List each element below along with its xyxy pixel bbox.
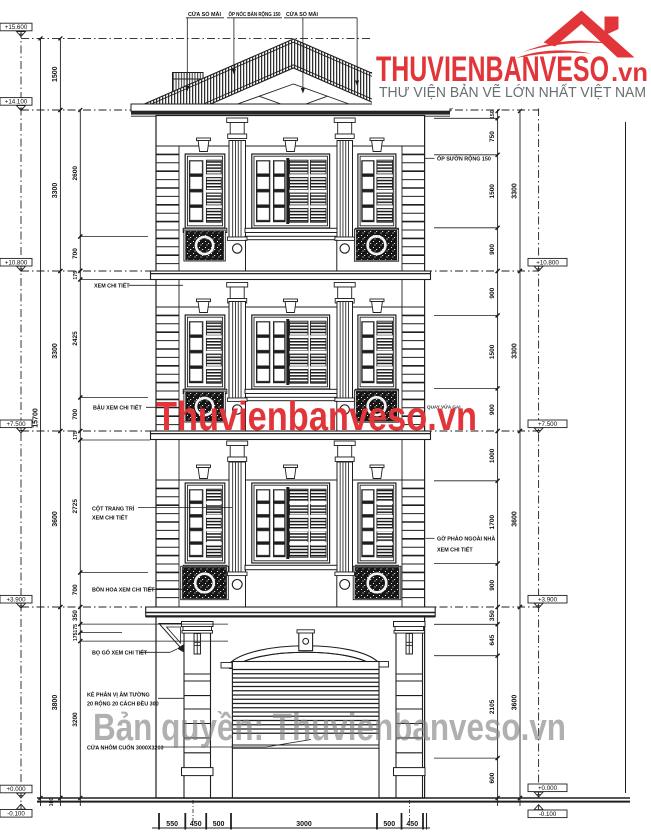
svg-text:15700: 15700	[33, 408, 40, 428]
svg-text:ỐP SƯỜN RỘNG 150: ỐP SƯỜN RỘNG 150	[437, 155, 491, 163]
svg-text:CỬA SỔ MÁI: CỬA SỔ MÁI	[286, 11, 318, 18]
svg-text:175: 175	[73, 624, 79, 633]
svg-text:3800: 3800	[52, 695, 59, 711]
svg-text:900: 900	[489, 244, 496, 255]
svg-text:500: 500	[213, 821, 225, 828]
svg-text:900: 900	[489, 579, 496, 590]
svg-text:3300: 3300	[512, 343, 519, 359]
svg-text:XEM CHI TIẾT: XEM CHI TIẾT	[92, 515, 128, 522]
svg-text:900: 900	[489, 404, 496, 415]
svg-text:Thuvienbanveso.vn: Thuvienbanveso.vn	[156, 393, 477, 439]
svg-text:700: 700	[72, 248, 79, 259]
svg-text:645: 645	[489, 634, 496, 645]
svg-text:+0.000: +0.000	[6, 786, 26, 793]
svg-text:-0.100: -0.100	[539, 811, 557, 818]
svg-text:3600: 3600	[52, 511, 59, 527]
svg-text:+7.500: +7.500	[538, 421, 558, 428]
svg-text:+3.900: +3.900	[538, 596, 558, 603]
svg-text:100: 100	[49, 798, 55, 807]
svg-text:600: 600	[489, 772, 496, 783]
svg-text:3300: 3300	[52, 183, 59, 199]
svg-text:+10.800: +10.800	[5, 259, 28, 266]
svg-text:3300: 3300	[512, 183, 519, 199]
svg-text:500: 500	[383, 821, 395, 828]
svg-text:1500: 1500	[52, 66, 59, 82]
svg-text:2425: 2425	[72, 331, 79, 346]
svg-text:175: 175	[73, 271, 79, 280]
svg-text:3000: 3000	[296, 821, 312, 828]
svg-text:3300: 3300	[52, 343, 59, 359]
svg-text:+14.100: +14.100	[5, 99, 28, 106]
svg-text:175: 175	[73, 431, 79, 440]
svg-text:750: 750	[489, 131, 496, 142]
svg-text:350: 350	[489, 610, 496, 621]
svg-text:1500: 1500	[489, 344, 496, 359]
svg-text:3600: 3600	[512, 511, 519, 527]
svg-text:900: 900	[489, 287, 496, 298]
svg-text:3200: 3200	[72, 712, 79, 727]
svg-text:150: 150	[490, 110, 496, 119]
svg-text:+15.600: +15.600	[5, 24, 28, 31]
svg-text:1000: 1000	[489, 448, 496, 463]
svg-text:ỐP NÓC BẢN RỘNG 150: ỐP NÓC BẢN RỘNG 150	[229, 10, 281, 18]
svg-text:2600: 2600	[72, 166, 79, 181]
svg-text:.vn: .vn	[611, 57, 648, 87]
svg-text:BỒN HOA XEM CHI TIẾT: BỒN HOA XEM CHI TIẾT	[92, 587, 155, 594]
svg-text:450: 450	[406, 821, 418, 828]
svg-text:XEM CHI TIẾT: XEM CHI TIẾT	[437, 547, 473, 554]
svg-text:1500: 1500	[489, 184, 496, 199]
svg-text:CỘT TRANG TRÍ: CỘT TRANG TRÍ	[92, 505, 135, 513]
svg-text:+3.900: +3.900	[6, 596, 26, 603]
svg-text:175: 175	[73, 632, 79, 641]
svg-text:KẺ PHÂN VỊ ÂM TƯỜNG: KẺ PHÂN VỊ ÂM TƯỜNG	[87, 691, 150, 699]
svg-text:1700: 1700	[489, 515, 496, 530]
svg-text:+10.800: +10.800	[536, 259, 559, 266]
svg-text:THUVIENBANVESO: THUVIENBANVESO	[376, 50, 609, 89]
svg-text:GỜ PHÀO NGOÀI NHÀ: GỜ PHÀO NGOÀI NHÀ	[437, 535, 495, 543]
svg-text:-0.100: -0.100	[7, 810, 25, 817]
svg-text:Bản quyền: Thuvienbanveso.vn: Bản quyền: Thuvienbanveso.vn	[93, 707, 566, 749]
svg-text:2725: 2725	[72, 499, 79, 514]
svg-text:550: 550	[166, 821, 178, 828]
svg-text:THƯ VIỆN BẢN VẼ LỚN NHẤT VIỆT: THƯ VIỆN BẢN VẼ LỚN NHẤT VIỆT NAM	[379, 84, 646, 101]
svg-text:450: 450	[190, 821, 202, 828]
svg-text:350: 350	[72, 610, 79, 621]
svg-text:700: 700	[72, 584, 79, 595]
svg-text:CỬA SỔ MÁI: CỬA SỔ MÁI	[188, 11, 221, 18]
svg-text:XEM CHI TIẾT: XEM CHI TIẾT	[94, 283, 130, 290]
svg-text:+7.500: +7.500	[6, 421, 26, 428]
svg-text:+0.000: +0.000	[538, 785, 558, 792]
svg-text:BỌ GỖ XEM CHI TIẾT: BỌ GỖ XEM CHI TIẾT	[92, 650, 148, 657]
svg-text:700: 700	[72, 408, 79, 419]
svg-text:BẬU XEM CHI TIẾT: BẬU XEM CHI TIẾT	[93, 405, 143, 412]
